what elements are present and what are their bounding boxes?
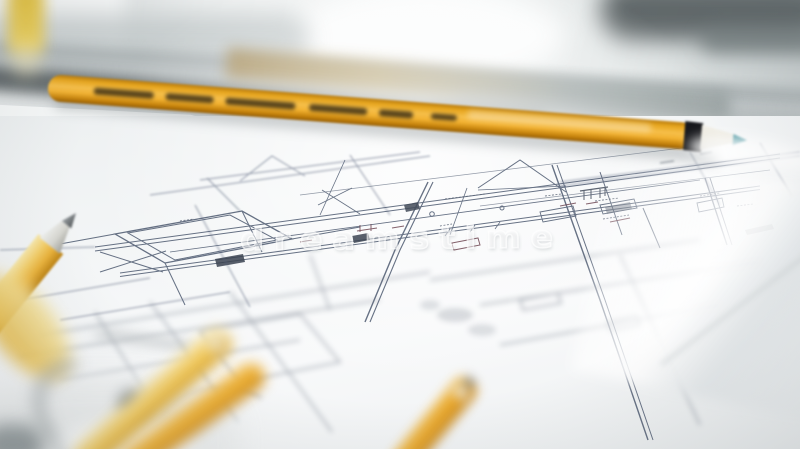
watermark-text: dreamstime (240, 216, 586, 261)
photo-blueprint-desk: dreamstime (0, 0, 800, 449)
